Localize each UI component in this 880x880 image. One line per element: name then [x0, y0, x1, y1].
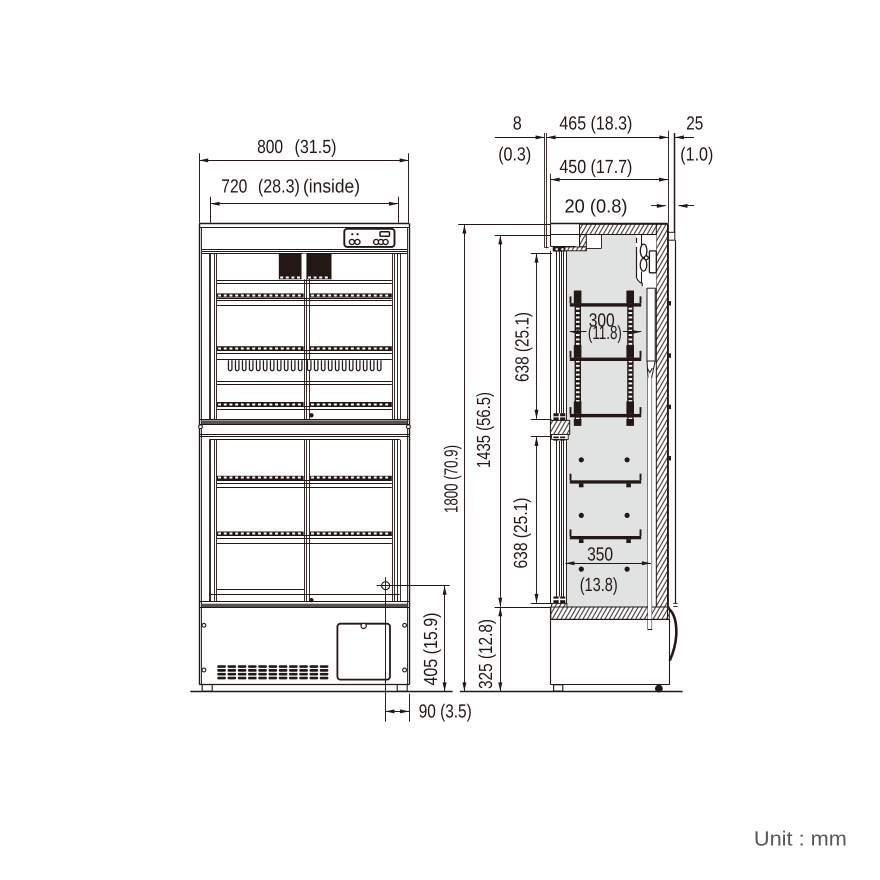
- svg-text:350: 350: [587, 545, 613, 566]
- svg-text:1435 (56.5): 1435 (56.5): [474, 392, 495, 468]
- svg-text:(0.3): (0.3): [498, 145, 531, 166]
- svg-text:(31.5): (31.5): [295, 137, 337, 158]
- svg-text:638 (25.1): 638 (25.1): [513, 312, 534, 382]
- svg-text:450 (17.7): 450 (17.7): [559, 157, 632, 178]
- svg-text:1800 (70.9): 1800 (70.9): [442, 445, 463, 513]
- svg-text:20 (0.8): 20 (0.8): [565, 196, 628, 217]
- svg-text:638 (25.1): 638 (25.1): [511, 498, 532, 569]
- svg-text:(28.3): (28.3): [258, 177, 300, 198]
- svg-text:(13.8): (13.8): [580, 575, 618, 596]
- svg-text:90 (3.5): 90 (3.5): [419, 701, 472, 722]
- svg-text:8: 8: [513, 114, 522, 135]
- svg-text:405 (15.9): 405 (15.9): [421, 613, 442, 686]
- svg-text:465 (18.3): 465 (18.3): [559, 114, 632, 135]
- svg-text:325 (12.8): 325 (12.8): [476, 619, 497, 689]
- svg-text:800: 800: [257, 137, 283, 158]
- svg-text:720: 720: [221, 177, 247, 198]
- svg-text:25: 25: [686, 114, 703, 135]
- svg-text:(11.8): (11.8): [588, 323, 622, 344]
- svg-text:(inside): (inside): [303, 177, 360, 198]
- svg-text:Unit : mm: Unit : mm: [754, 827, 847, 850]
- svg-text:(1.0): (1.0): [680, 145, 713, 166]
